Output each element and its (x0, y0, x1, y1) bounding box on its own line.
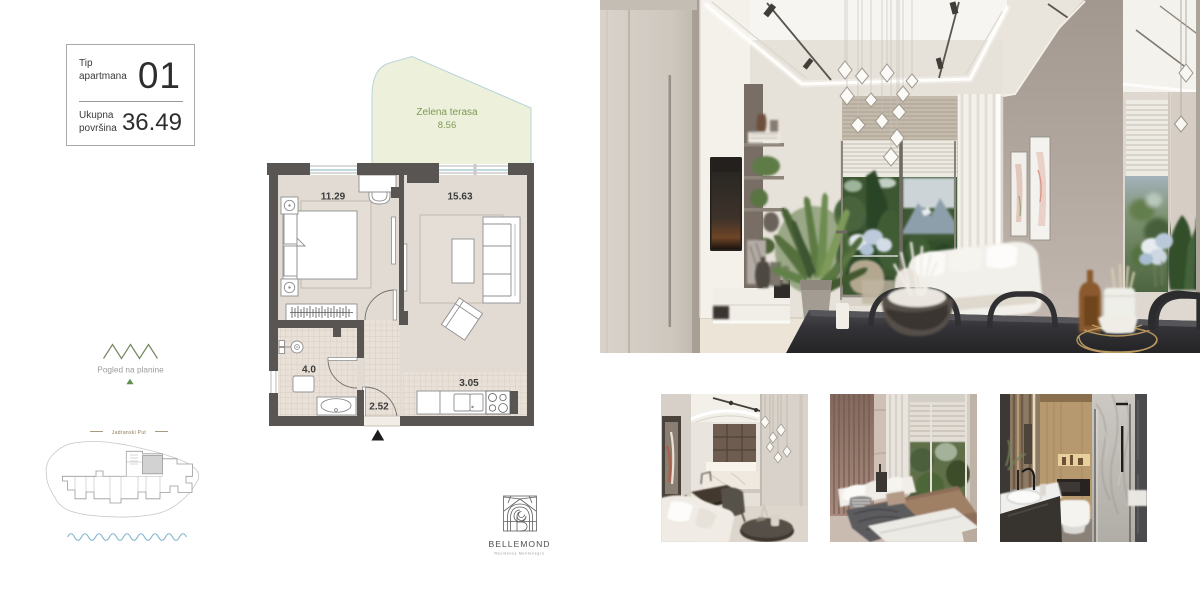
svg-text:Jadranski Put: Jadranski Put (112, 430, 147, 436)
svg-text:BELLEMOND: BELLEMOND (488, 539, 550, 549)
svg-text:3.05: 3.05 (459, 378, 479, 389)
svg-text:Residence Montenegro: Residence Montenegro (494, 552, 544, 556)
svg-text:15.63: 15.63 (447, 192, 472, 203)
svg-text:4.0: 4.0 (302, 365, 316, 376)
svg-text:11.29: 11.29 (321, 192, 346, 203)
svg-text:Zelena terasa: Zelena terasa (416, 107, 478, 118)
svg-text:Pogled na planine: Pogled na planine (97, 365, 164, 375)
svg-text:2.52: 2.52 (369, 402, 389, 413)
svg-text:8.56: 8.56 (438, 120, 457, 131)
